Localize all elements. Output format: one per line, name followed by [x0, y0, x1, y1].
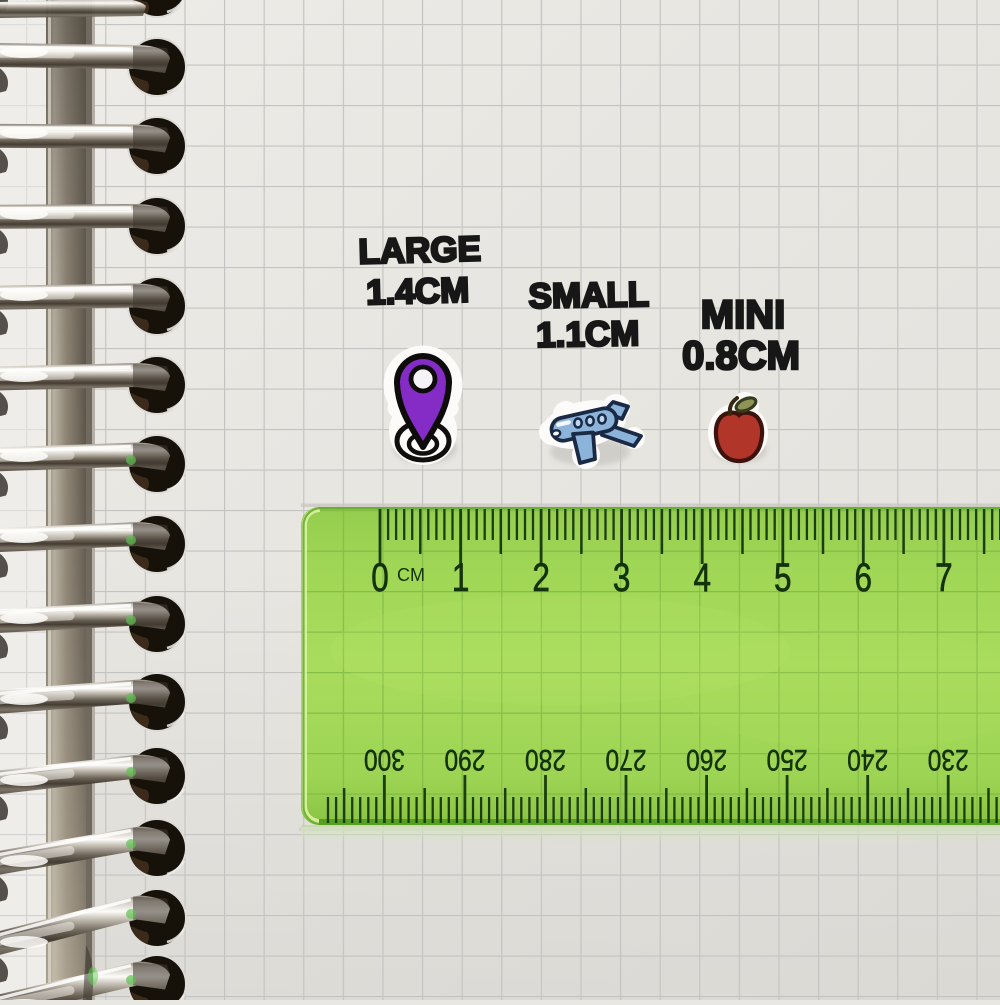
svg-text:4: 4 — [693, 556, 711, 600]
svg-text:0: 0 — [371, 556, 389, 600]
svg-text:270: 270 — [606, 743, 647, 776]
svg-text:SMALL: SMALL — [528, 275, 649, 316]
svg-text:240: 240 — [847, 743, 888, 776]
svg-text:5: 5 — [774, 556, 792, 600]
svg-text:6: 6 — [855, 556, 873, 600]
svg-text:1: 1 — [452, 556, 470, 600]
svg-text:1.4CM: 1.4CM — [366, 271, 470, 313]
svg-text:7: 7 — [935, 556, 953, 600]
svg-text:MINI: MINI — [701, 293, 785, 337]
svg-text:3: 3 — [613, 556, 631, 600]
svg-text:250: 250 — [767, 743, 808, 776]
svg-text:260: 260 — [686, 743, 727, 776]
svg-text:LARGE: LARGE — [358, 229, 481, 271]
svg-text:1.1CM: 1.1CM — [536, 314, 640, 355]
svg-text:300: 300 — [364, 743, 405, 776]
svg-text:CM: CM — [397, 565, 425, 585]
svg-text:290: 290 — [444, 743, 485, 776]
svg-text:0.8CM: 0.8CM — [682, 334, 800, 378]
svg-text:230: 230 — [928, 743, 969, 776]
svg-text:280: 280 — [525, 743, 566, 776]
svg-text:2: 2 — [532, 556, 550, 600]
